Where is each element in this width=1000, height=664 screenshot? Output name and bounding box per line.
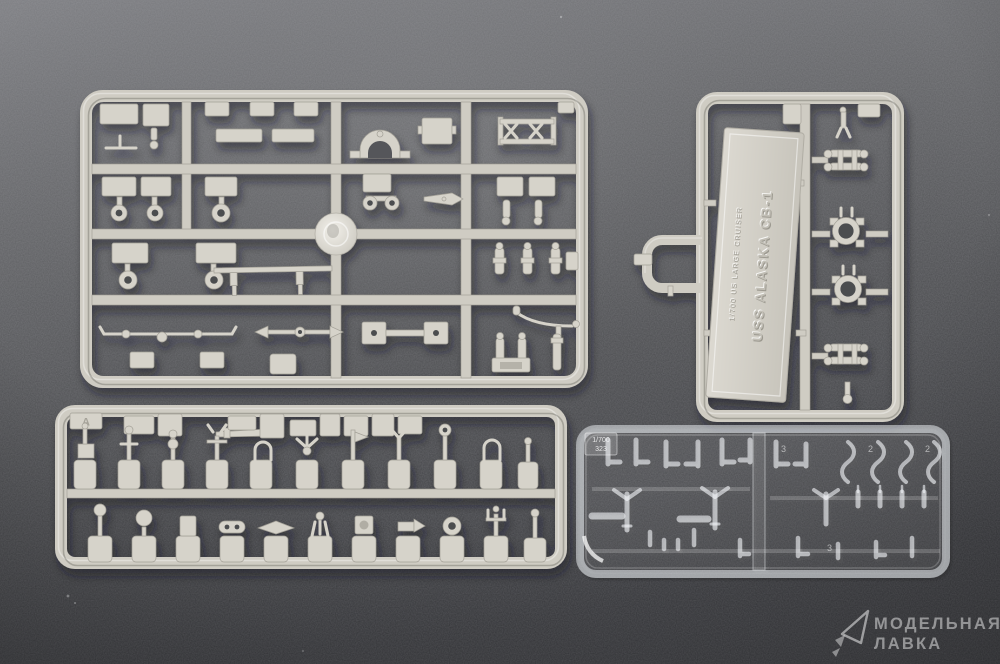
- svg-text:323: 323: [595, 446, 607, 453]
- svg-text:2: 2: [868, 444, 873, 454]
- center-disc-part: [315, 213, 357, 255]
- svg-text:2: 2: [925, 444, 930, 454]
- clear-sprue-scale-tag: 1/700 323: [585, 433, 617, 455]
- watermark-line1: МОДЕЛЬНАЯ: [874, 615, 1000, 633]
- svg-text:3: 3: [781, 444, 786, 454]
- photo-of-model-kit-sprues: USS ALASKA CB-1 USS ALASKA CB-1 USS ALAS…: [0, 0, 1000, 664]
- svg-text:3: 3: [827, 543, 832, 553]
- photo-canvas: USS ALASKA CB-1 USS ALASKA CB-1 USS ALAS…: [0, 0, 1000, 664]
- watermark-line2: ЛАВКА: [874, 635, 942, 653]
- clear-sprue: 1/700 323: [580, 429, 946, 574]
